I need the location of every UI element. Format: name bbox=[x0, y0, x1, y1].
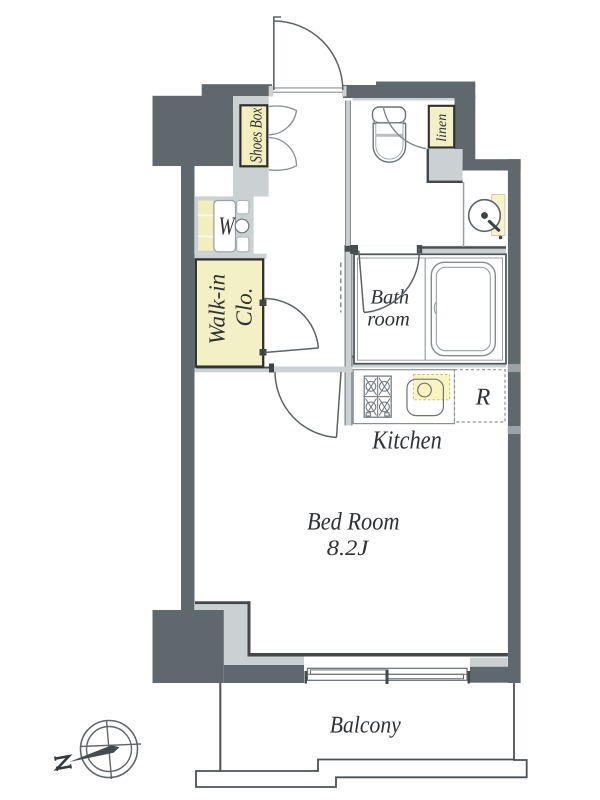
svg-text:Kitchen: Kitchen bbox=[371, 426, 441, 455]
svg-text:Balcony: Balcony bbox=[330, 712, 401, 738]
svg-text:Clo.: Clo. bbox=[232, 288, 257, 327]
svg-text:linen: linen bbox=[435, 114, 450, 142]
svg-text:Bed Room: Bed Room bbox=[307, 508, 400, 535]
svg-text:Shoes Box: Shoes Box bbox=[247, 107, 266, 162]
svg-text:R: R bbox=[475, 385, 491, 411]
svg-text:8.2J: 8.2J bbox=[327, 535, 370, 560]
svg-text:Walk-in: Walk-in bbox=[205, 274, 230, 345]
svg-text:W: W bbox=[218, 212, 236, 241]
svg-text:room: room bbox=[367, 309, 410, 331]
